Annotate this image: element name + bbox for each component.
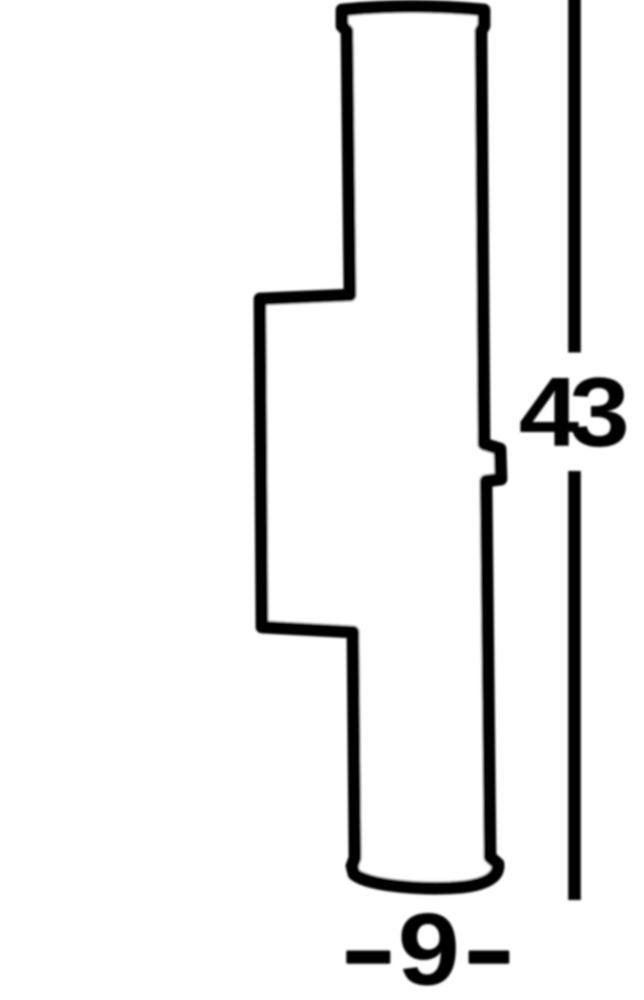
svg-text:9: 9 bbox=[398, 892, 460, 1000]
svg-text:43: 43 bbox=[519, 357, 626, 467]
